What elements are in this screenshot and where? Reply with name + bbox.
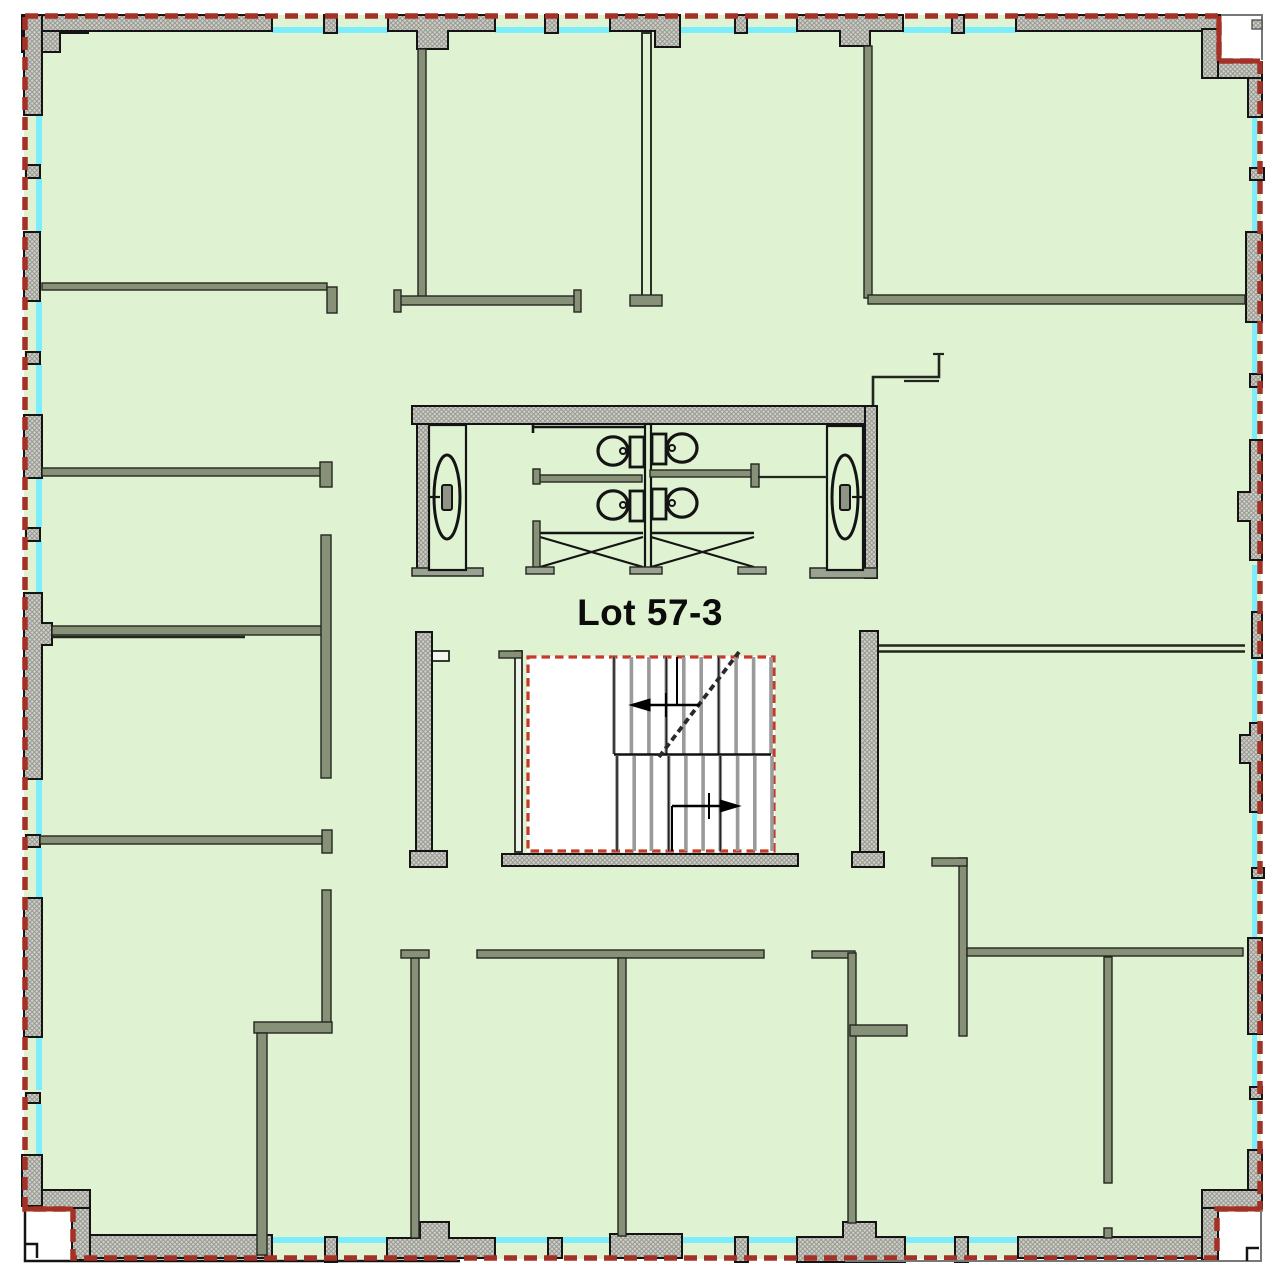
svg-text:Lot 57-3: Lot 57-3 <box>577 592 723 633</box>
